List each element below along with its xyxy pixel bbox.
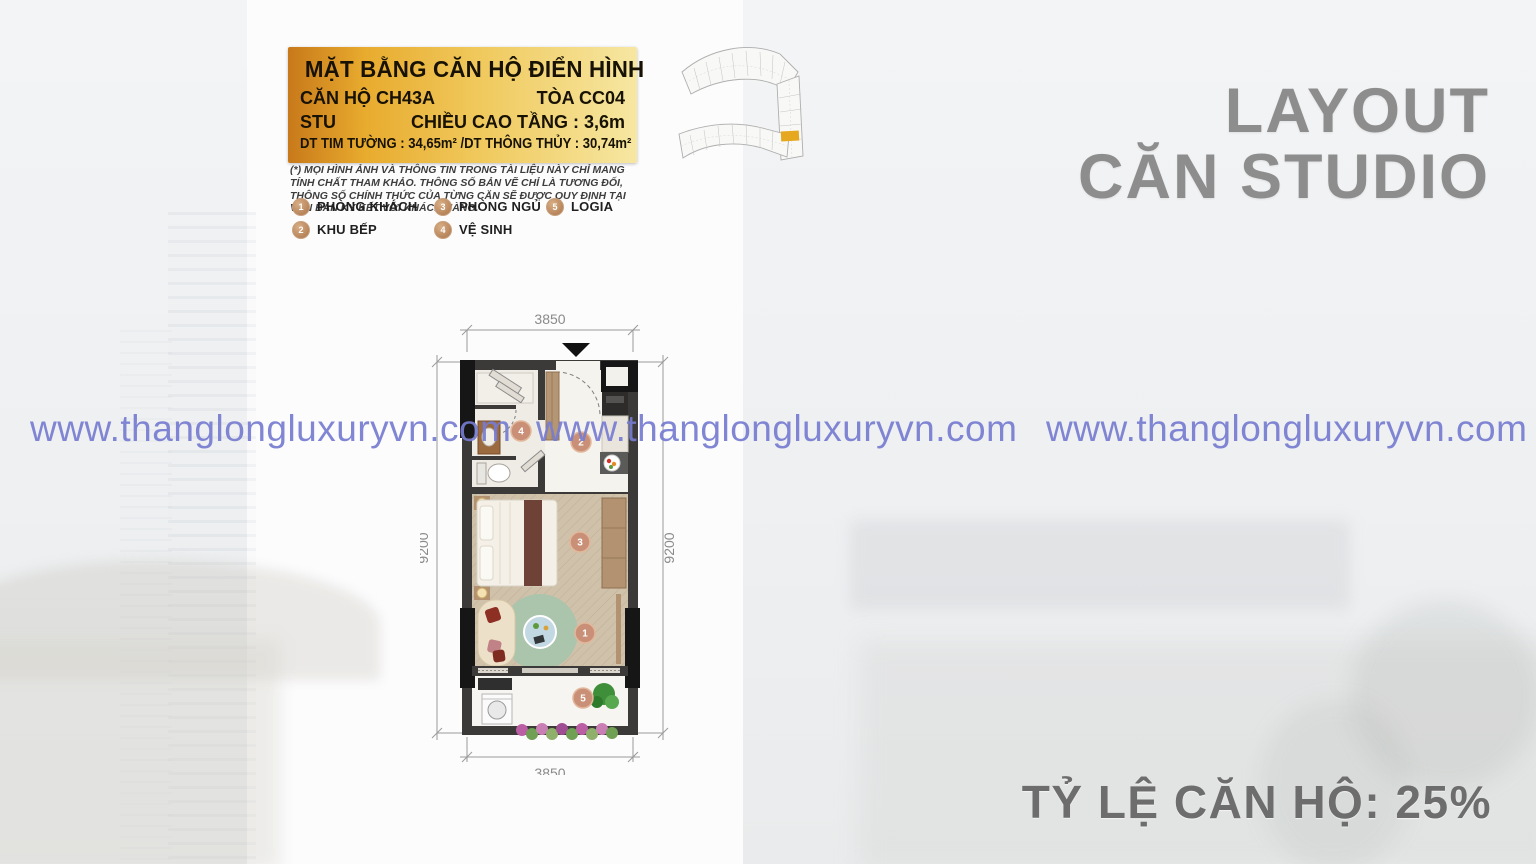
legend-marker-2: 2 <box>292 221 310 239</box>
floor-height-label: CHIỀU CAO TẦNG : 3,6m <box>411 110 625 134</box>
sofa-pillow-3 <box>492 649 506 663</box>
entrance-opening <box>556 361 600 370</box>
toilet-tank <box>477 463 486 484</box>
info-box-title: MẶT BẰNG CĂN HỘ ĐIỂN HÌNH <box>305 56 620 83</box>
dim-top: 3850 <box>534 311 565 327</box>
tower-label: TÒA CC04 <box>537 86 625 110</box>
bed-runner <box>524 500 542 586</box>
dim-left: 9200 <box>420 532 431 563</box>
svg-text:3: 3 <box>577 538 583 549</box>
svg-text:4: 4 <box>518 427 524 438</box>
legend-marker-1: 1 <box>292 198 310 216</box>
wc-partition <box>472 456 516 460</box>
legend-marker-3: 3 <box>434 198 452 216</box>
lamp-icon-2 <box>477 588 487 598</box>
dim-bottom: 3850 <box>534 765 565 775</box>
marker-living-room: 1 <box>575 623 595 643</box>
watermark-2: www.thanglongluxuryvn.com <box>536 408 1017 450</box>
marker-logia: 5 <box>573 688 593 708</box>
watermark-3: www.thanglongluxuryvn.com <box>1046 408 1527 450</box>
balcony-partition <box>478 678 512 690</box>
coffee-table <box>524 616 556 648</box>
apartment-info-box: MẶT BẰNG CĂN HỘ ĐIỂN HÌNH CĂN HỘ CH43A T… <box>288 47 637 163</box>
watermark: www.thanglongluxuryvn.com <box>30 408 511 450</box>
legend-marker-5: 5 <box>546 198 564 216</box>
legend-marker-4: 4 <box>434 221 452 239</box>
legend-item-bedroom: 3 PHÒNG NGỦ <box>434 198 546 216</box>
background-water <box>0 640 280 864</box>
pillow-2 <box>480 546 493 580</box>
page-title-line2: CĂN STUDIO <box>1078 144 1490 210</box>
legend-item-logia: 5 LOGIA <box>546 198 636 216</box>
pillow <box>480 506 493 540</box>
unit-ratio-label: TỶ LỆ CĂN HỘ: 25% <box>1022 775 1492 829</box>
floor-plan: 3850 3850 9200 9200 <box>420 295 700 775</box>
page-title-line1: LAYOUT <box>1078 78 1490 144</box>
legend-item-bathroom: 4 VỆ SINH <box>434 221 546 239</box>
background-city-skyline <box>850 520 1350 610</box>
page-title: LAYOUT CĂN STUDIO <box>1078 78 1490 210</box>
entry-shaft-niche <box>606 367 628 386</box>
unit-type-label: STU <box>300 110 336 134</box>
slide-canvas: MẶT BẰNG CĂN HỘ ĐIỂN HÌNH CĂN HỘ CH43A T… <box>0 0 1536 864</box>
marker-bathroom: 4 <box>511 421 531 441</box>
marker-bedroom: 3 <box>570 532 590 552</box>
site-plan-thumbnail <box>676 36 822 188</box>
washer-drum <box>488 701 506 719</box>
svg-text:5: 5 <box>580 694 586 705</box>
legend-item-living-room: 1 PHÒNG KHÁCH <box>292 198 434 216</box>
room-legend: 1 PHÒNG KHÁCH 2 KHU BẾP 3 PHÒNG NGỦ 4 VỆ… <box>292 195 636 241</box>
dim-right: 9200 <box>661 532 677 563</box>
toilet-bowl <box>488 464 510 482</box>
bedroom-wall <box>472 487 542 494</box>
tv-console <box>602 498 626 588</box>
unit-code-label: CĂN HỘ CH43A <box>300 86 435 110</box>
entrance-arrow-icon <box>562 343 590 357</box>
legend-item-kitchen: 2 KHU BẾP <box>292 221 434 239</box>
glass-door-track <box>616 594 621 664</box>
window-wall <box>472 666 628 676</box>
area-label: DT TIM TƯỜNG : 34,65m² /DT THÔNG THỦY : … <box>300 134 593 155</box>
highlighted-unit <box>781 131 799 142</box>
svg-text:1: 1 <box>582 629 588 640</box>
